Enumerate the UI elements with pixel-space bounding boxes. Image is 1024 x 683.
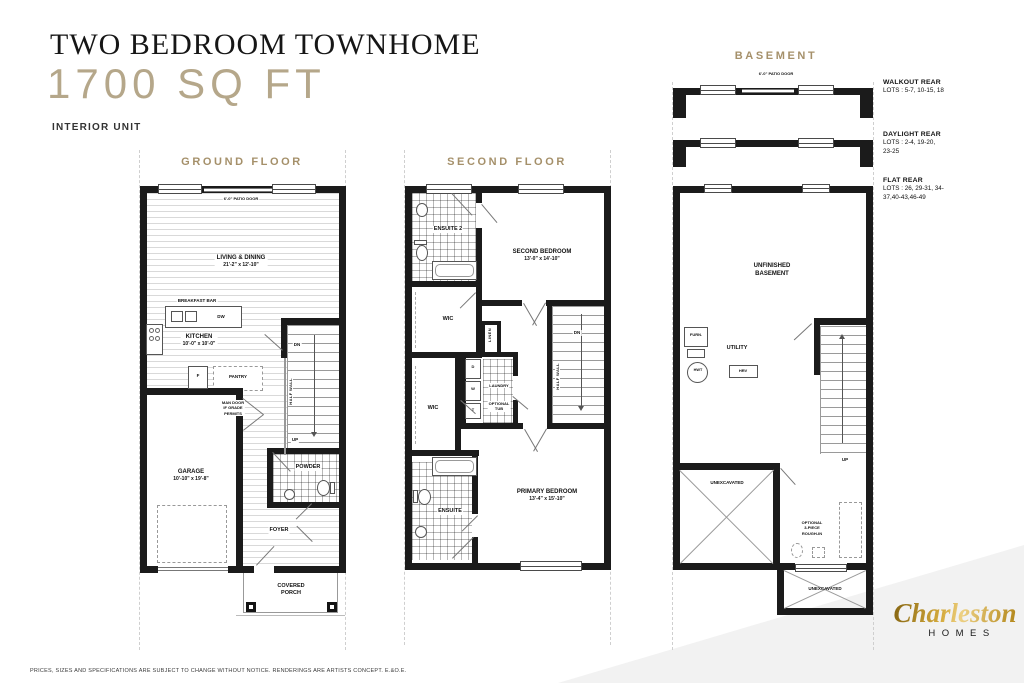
walkout-rear-legend: WALKOUT REAR LOTS : 5-7, 10-15, 18	[883, 79, 973, 95]
primary-bedroom-label: PRIMARY BEDROOM 13'-4" x 15'-10"	[515, 488, 579, 503]
linen-wall	[497, 321, 501, 354]
powder-wall	[267, 448, 340, 454]
wall-segment	[140, 566, 158, 573]
room-dims: 10'-0" x 10'-0"	[183, 341, 216, 348]
window	[272, 184, 316, 194]
wic-wall	[405, 450, 479, 456]
optional-tub-label: OPTIONAL TUB	[488, 401, 511, 412]
ensuite2-wall	[476, 193, 482, 203]
option-lots: LOTS : 2-4, 19-20, 23-25	[883, 138, 941, 156]
unexcavated-label: UNEXCAVATED	[709, 480, 744, 486]
window	[795, 564, 847, 572]
unfinished-basement-label: UNFINISHED BASEMENT	[753, 262, 792, 278]
wall-segment	[604, 186, 611, 570]
wic-wall	[455, 358, 461, 450]
option-name: WALKOUT REAR	[883, 79, 973, 86]
hall-wall	[547, 423, 605, 429]
door-leaf	[524, 429, 538, 452]
powder-tile-floor	[273, 454, 339, 502]
arrow-up-icon	[839, 331, 845, 339]
ensuite-label: ENSUITE	[437, 508, 463, 515]
square-footage: 1700 SQ FT	[47, 60, 326, 108]
door-leaf	[460, 292, 476, 308]
stair-wall	[281, 318, 340, 325]
logo-sub-text: HOMES	[890, 628, 1020, 639]
toilet-fixture	[317, 480, 330, 496]
garage-label: GARAGE 10'-10" x 19'-8"	[171, 468, 210, 483]
room-name: PRIMARY BEDROOM	[517, 488, 577, 496]
window	[700, 85, 736, 95]
wall-segment	[847, 563, 873, 570]
second-floor-heading: SECOND FLOOR	[447, 156, 567, 168]
room-dims: 10'-10" x 19'-8"	[173, 476, 208, 483]
rough-in-label: OPTIONAL 3-PIECE ROUGH-IN	[801, 520, 824, 536]
powder-label: POWDER	[295, 464, 322, 471]
flat-rear-wall	[673, 186, 873, 193]
arrow-down-icon	[311, 432, 317, 440]
window	[798, 138, 834, 148]
laundry-wall	[461, 352, 518, 357]
second-bedroom-label: SECOND BEDROOM 13'-0" x 14'-10"	[511, 248, 574, 263]
page-title: TWO BEDROOM TOWNHOME	[50, 28, 481, 62]
option-lots: LOTS : 26, 29-31, 34-37,40-43,46-49	[883, 184, 947, 202]
door-leaf	[481, 204, 497, 223]
toilet-fixture	[416, 245, 428, 261]
ground-floor-heading: GROUND FLOOR	[181, 156, 303, 168]
patio-door-label: 6'-0" PATIO DOOR	[758, 71, 794, 76]
stair-wall	[547, 306, 552, 423]
option-lots: LOTS : 5-7, 10-15, 18	[883, 86, 973, 95]
stair-direction-line	[842, 338, 843, 443]
option-name: FLAT REAR	[883, 177, 947, 184]
door-leaf	[780, 468, 795, 485]
stairs-up-label: UP	[841, 457, 849, 463]
foyer-label: FOYER	[269, 527, 290, 534]
washer-label: W	[470, 386, 476, 391]
daylight-rear-legend: DAYLIGHT REAR LOTS : 2-4, 19-20, 23-25	[883, 131, 941, 156]
laundry-wall	[513, 356, 518, 376]
window	[704, 184, 732, 193]
garage-door-opening	[158, 567, 228, 571]
flat-rear-legend: FLAT REAR LOTS : 26, 29-31, 34-37,40-43,…	[883, 177, 947, 202]
porch-post	[246, 602, 256, 612]
burner-icon	[149, 336, 154, 341]
sink-fixture	[415, 526, 427, 538]
living-dining-label: LIVING & DINING 21'-2" x 12'-10"	[215, 254, 268, 269]
wall-segment	[405, 186, 412, 570]
door-leaf	[532, 303, 546, 326]
breakfast-bar-label: BREAKFAST BAR	[177, 298, 218, 304]
room-name: KITCHEN	[183, 333, 216, 341]
burner-icon	[149, 328, 154, 333]
furnace-label: FURN.	[689, 332, 703, 337]
burner-icon	[155, 336, 160, 341]
half-wall-label: HALF WALL	[555, 363, 560, 390]
furnace-duct	[687, 349, 705, 358]
closet-rod-line	[415, 366, 416, 444]
dishwasher-label: DW	[216, 314, 226, 320]
unexcavated-wall	[777, 608, 873, 615]
wall-stub	[860, 140, 873, 167]
ensuite2-wall	[405, 281, 482, 287]
hwt-label: HWT	[693, 368, 704, 373]
fridge-label: F	[196, 373, 201, 379]
garage-wall	[140, 388, 242, 395]
hrv-label: HRV	[738, 368, 748, 373]
sink-fixture-dashed	[812, 547, 825, 558]
logo-script-text: Charleston	[890, 600, 1020, 627]
disclaimer-text: PRICES, SIZES AND SPECIFICATIONS ARE SUB…	[30, 668, 407, 674]
toilet-tank	[330, 482, 335, 494]
arrow-down-icon	[578, 406, 584, 414]
patio-door-label: 6'-0" PATIO DOOR	[223, 196, 259, 201]
hall-wall	[461, 423, 523, 429]
dryer-label: D	[471, 364, 476, 369]
door-leaf	[523, 303, 537, 326]
room-dims: 13'-0" x 14'-10"	[513, 256, 572, 263]
interior-wall	[673, 463, 780, 470]
porch-post	[327, 602, 337, 612]
room-name: SECOND BEDROOM	[513, 248, 572, 256]
wall-segment	[866, 186, 873, 570]
option-name: DAYLIGHT REAR	[883, 131, 941, 138]
window	[802, 184, 830, 193]
kitchen-sink	[171, 311, 183, 322]
parking-stall-outline	[157, 505, 227, 563]
stair-wall	[814, 318, 866, 325]
window	[520, 561, 582, 571]
floorplan-sheet: TWO BEDROOM TOWNHOME 1700 SQ FT INTERIOR…	[0, 0, 1024, 683]
bathtub-basin	[435, 460, 474, 473]
bedroom-wall	[480, 300, 522, 306]
stairs-dn-label: DN	[293, 342, 302, 348]
door-leaf	[533, 429, 547, 452]
room-dims: 21'-2" x 12'-10"	[217, 262, 266, 269]
basement-heading: BASEMENT	[735, 50, 818, 62]
bathtub-fixture-dashed	[839, 502, 862, 558]
unit-type: INTERIOR UNIT	[52, 122, 142, 133]
window	[700, 138, 736, 148]
ensuite2-label: ENSUITE 2	[433, 226, 463, 233]
staircase	[820, 326, 866, 454]
stair-wall	[281, 325, 287, 358]
charleston-homes-logo: Charleston HOMES	[890, 600, 1020, 639]
ensuite-wall	[472, 537, 478, 563]
wall-segment	[140, 186, 147, 573]
room-name: LIVING & DINING	[217, 254, 266, 262]
burner-icon	[155, 328, 160, 333]
linen-wall	[481, 321, 485, 354]
room-dims: 13'-4" x 15'-10"	[517, 496, 577, 503]
wall-segment	[673, 186, 680, 570]
stairs-up-label: UP	[291, 437, 299, 443]
kitchen-sink	[185, 311, 197, 322]
bathtub-basin	[435, 264, 474, 277]
unexcavated-rear-label: UNEXCAVATED	[807, 586, 842, 592]
covered-porch-label: COVERED PORCH	[276, 583, 305, 598]
kitchen-label: KITCHEN 10'-0" x 10'-0"	[181, 333, 218, 348]
pantry-label: PANTRY	[228, 374, 248, 380]
closet-rod-line	[415, 292, 416, 348]
wall-stub	[860, 88, 873, 118]
door-leaf	[794, 323, 812, 340]
stair-direction-line	[581, 314, 582, 409]
stairs-dn-label: DN	[573, 330, 582, 336]
half-wall-label: HALF WALL	[288, 378, 293, 405]
patio-door-opening	[204, 188, 272, 192]
wall-stub	[673, 140, 686, 167]
window	[158, 184, 202, 194]
laundry-tub-label: T	[471, 407, 475, 412]
wall-segment	[274, 566, 346, 573]
window	[518, 184, 564, 194]
porch-step-line	[236, 615, 345, 616]
interior-wall	[773, 463, 780, 570]
sink-fixture	[416, 203, 428, 217]
wall-stub	[673, 88, 686, 118]
wic-second-label: WIC	[442, 316, 455, 323]
room-name: GARAGE	[173, 468, 208, 476]
wall-segment	[339, 186, 346, 573]
toilet-fixture-dashed	[791, 543, 803, 558]
sink-fixture	[284, 489, 295, 500]
half-wall-line	[284, 358, 286, 455]
powder-wall	[267, 448, 273, 508]
wic-primary-label: WIC	[427, 405, 440, 412]
man-door-label: MAN DOOR IF GRADE PERMITS	[221, 400, 245, 416]
stair-direction-line	[314, 335, 315, 435]
patio-door-opening	[742, 89, 794, 93]
linen-label: LINEN	[487, 328, 492, 342]
guide-line	[873, 82, 874, 650]
utility-label: UTILITY	[726, 345, 749, 352]
toilet-fixture	[418, 489, 431, 505]
bedroom-wall	[546, 300, 605, 306]
window	[426, 184, 472, 194]
powder-wall	[267, 502, 340, 508]
laundry-tile-floor	[483, 359, 513, 423]
window	[798, 85, 834, 95]
laundry-label: LAUNDRY	[488, 383, 509, 388]
stair-wall	[814, 325, 820, 375]
